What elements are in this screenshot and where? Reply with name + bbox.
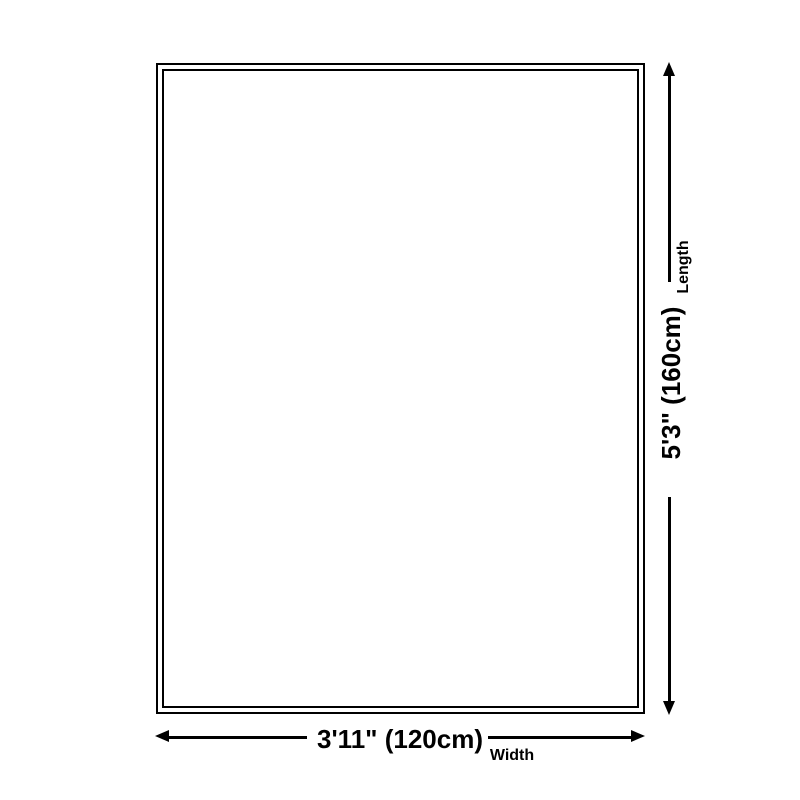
width-arrow-right-icon — [631, 730, 645, 742]
length-arrow-up-icon — [663, 62, 675, 76]
length-axis-label: Length — [676, 240, 692, 293]
length-arrow-down-icon — [663, 701, 675, 715]
width-arrow-line-right — [488, 736, 632, 739]
length-value-label: 5'3" (160cm) — [658, 307, 684, 460]
length-arrow-line-top — [668, 75, 671, 282]
width-axis-label: Width — [490, 748, 534, 764]
length-arrow-line-bottom — [668, 497, 671, 702]
width-arrow-line-left — [167, 736, 307, 739]
rug-outline — [156, 63, 645, 714]
width-value-label: 3'11" (120cm) — [317, 726, 483, 752]
rug-inner-outline — [162, 69, 639, 708]
size-diagram: 5'3" (160cm) Length 3'11" (120cm) Width — [0, 0, 800, 800]
